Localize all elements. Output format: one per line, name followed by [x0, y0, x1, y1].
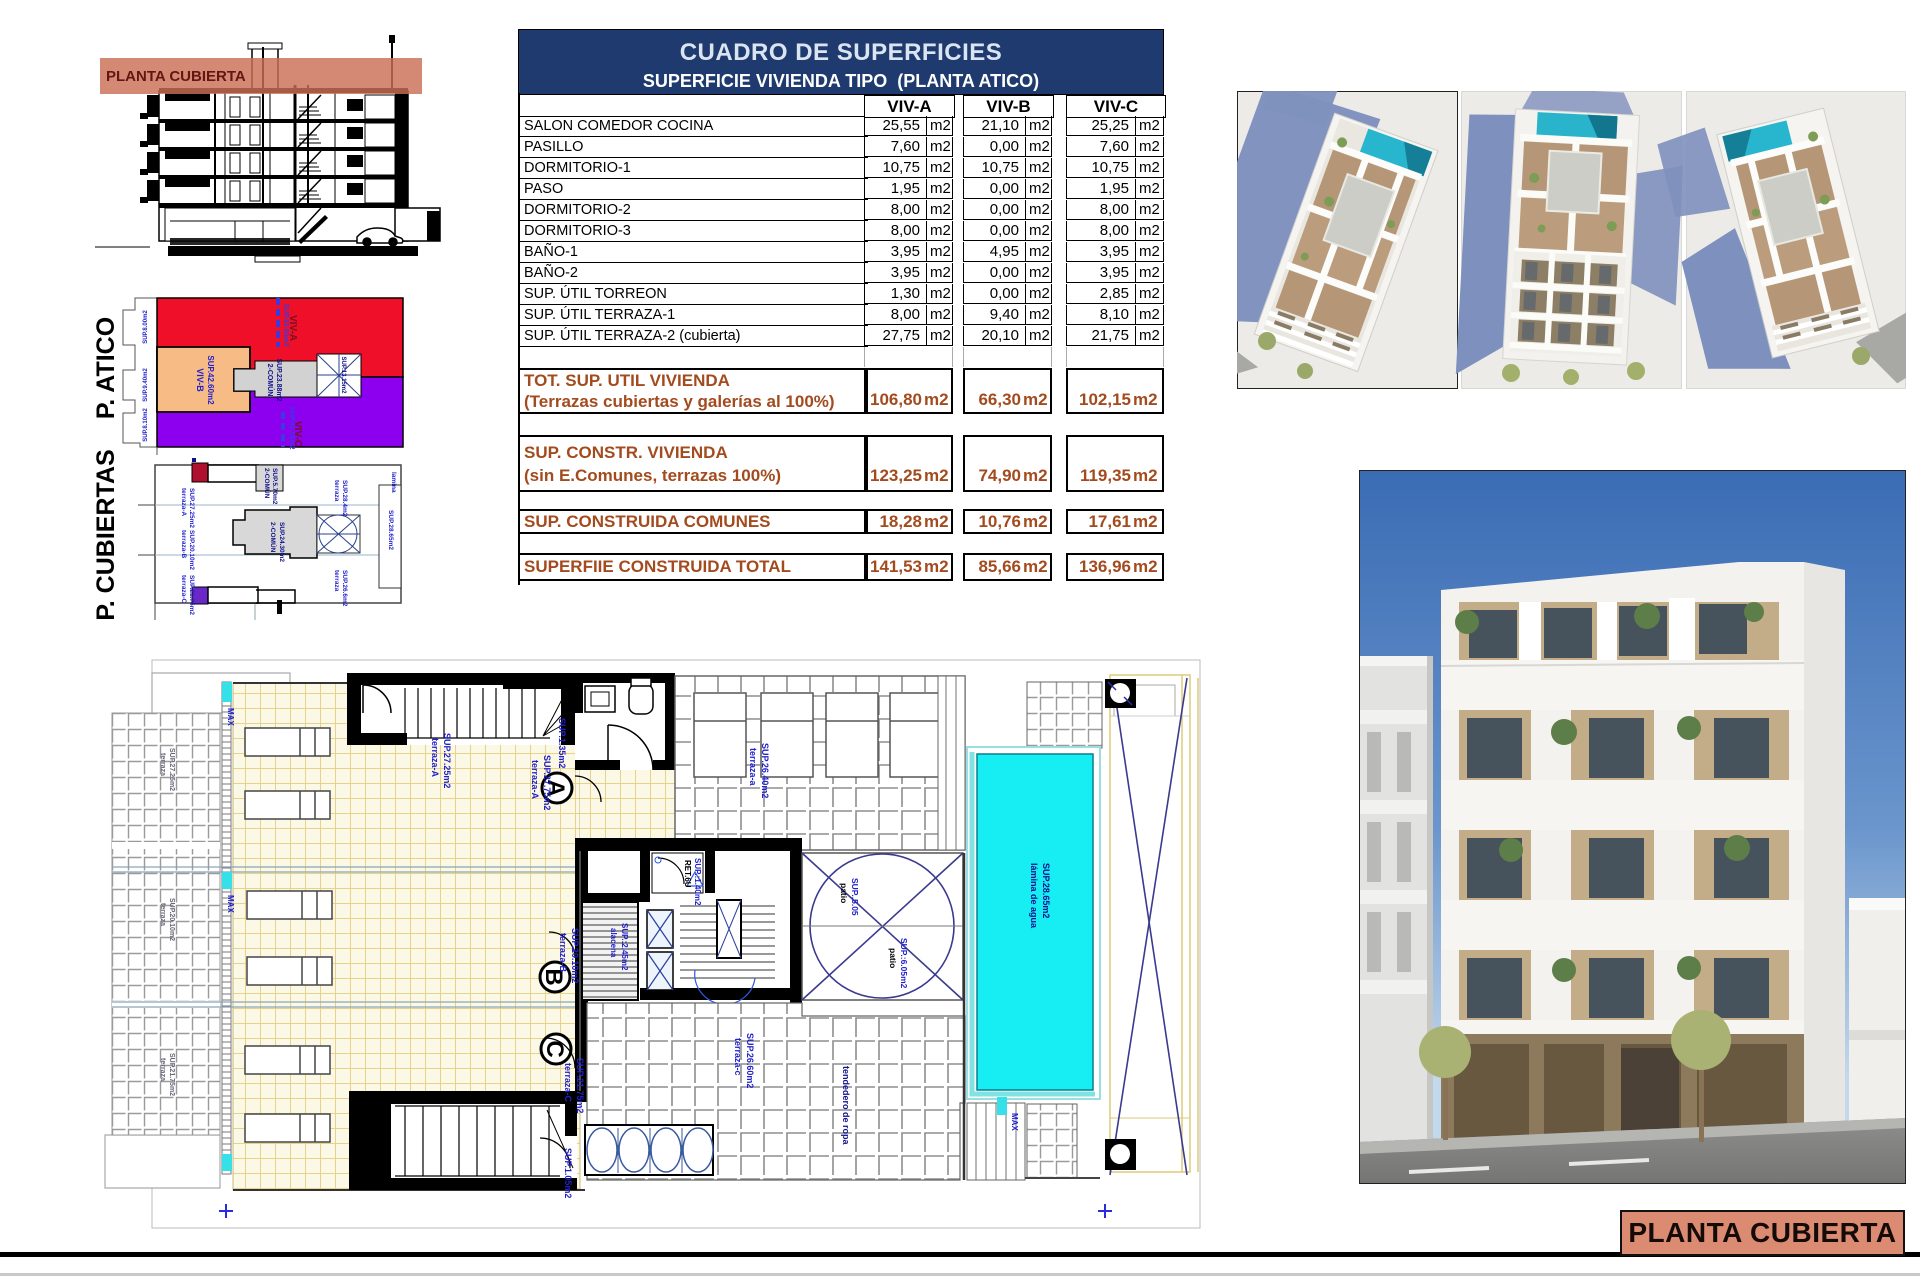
svg-text:SUP.21.75m2: SUP.21.75m2	[575, 1058, 585, 1113]
svg-text:terraza-B: terraza-B	[558, 933, 568, 973]
svg-text:SUP.:1.40m2: SUP.:1.40m2	[693, 858, 702, 906]
svg-text:SUP.26.60m2: SUP.26.60m2	[745, 1033, 755, 1088]
svg-text:SUP.8.00m2: SUP.8.00m2	[143, 310, 149, 344]
svg-text:SUP.:6.05m2: SUP.:6.05m2	[899, 938, 909, 989]
svg-text:VIV-B: VIV-B	[195, 368, 205, 392]
svg-text:terraza-a: terraza-a	[748, 748, 758, 787]
svg-text:SUP.13.15m2: SUP.13.15m2	[340, 357, 346, 395]
svg-text:terraza: terraza	[159, 903, 166, 926]
svg-text:terraza-B: terraza-B	[180, 530, 187, 558]
svg-text:patio: patio	[839, 883, 849, 903]
svg-text:terraza-A: terraza-A	[430, 738, 440, 778]
svg-text:terraza-c: terraza-c	[733, 1038, 743, 1076]
svg-text:SUP.20.10m2: SUP.20.10m2	[168, 898, 175, 941]
svg-text:P. CUBIERTAS: P. CUBIERTAS	[95, 450, 120, 621]
svg-text:MAX: MAX	[1010, 1113, 1019, 1131]
svg-text:terraza-C: terraza-C	[563, 1063, 573, 1103]
svg-text:SUP.9.40m2: SUP.9.40m2	[143, 368, 149, 402]
svg-text:2-COMÚN: 2-COMÚN	[266, 364, 275, 397]
svg-text:SUP.:2.45m2: SUP.:2.45m2	[620, 923, 629, 971]
svg-text:SUP.23.88m2: SUP.23.88m2	[275, 358, 282, 401]
svg-text:SUP.27.75m2: SUP.27.75m2	[542, 755, 552, 810]
svg-text:SUP.27.25m2: SUP.27.25m2	[168, 748, 175, 791]
svg-text:SUP.20.10m2: SUP.20.10m2	[570, 928, 580, 983]
svg-text:SUP.8.10m2: SUP.8.10m2	[143, 408, 149, 442]
svg-text:terraza: terraza	[159, 753, 166, 776]
svg-text:terraza: terraza	[333, 480, 340, 502]
svg-text:SUP.26.40m2: SUP.26.40m2	[760, 743, 770, 798]
svg-text:alacena: alacena	[609, 928, 618, 958]
svg-text:SUP.5.70m2: SUP.5.70m2	[271, 468, 278, 505]
svg-text:terraza-C: terraza-C	[180, 575, 187, 603]
svg-text:SUP.21.75m2: SUP.21.75m2	[188, 575, 195, 615]
svg-text:SUP.28.65m2: SUP.28.65m2	[387, 510, 394, 550]
svg-text:P. ATICO: P. ATICO	[95, 317, 120, 419]
svg-text:SUP.28.65m2: SUP.28.65m2	[1041, 863, 1051, 918]
svg-text:SUP.21.75m2: SUP.21.75m2	[168, 1053, 175, 1096]
svg-text:terraza: terraza	[333, 570, 340, 592]
svg-text:lámina de agua: lámina de agua	[1029, 863, 1039, 929]
svg-text:tendedero de ropa: tendedero de ropa	[841, 1066, 851, 1146]
svg-text:SUP.42.60m2: SUP.42.60m2	[282, 303, 289, 346]
svg-text:SUP.42.60m2: SUP.42.60m2	[206, 355, 215, 405]
svg-text:RET.6U: RET.6U	[683, 860, 692, 888]
svg-text:MAX: MAX	[226, 708, 235, 726]
svg-text:lamina: lamina	[390, 472, 397, 493]
svg-text:terraza-A: terraza-A	[180, 488, 187, 516]
svg-text:2-COMÚN: 2-COMÚN	[269, 522, 278, 553]
svg-text:SUP.1.35m2: SUP.1.35m2	[557, 718, 567, 768]
svg-text:MAX: MAX	[226, 895, 235, 913]
svg-text:patio: patio	[888, 948, 898, 968]
svg-text:SUP.27.25m2: SUP.27.25m2	[188, 488, 195, 528]
svg-text:SUP.41.05m2: SUP.41.05m2	[288, 406, 295, 449]
svg-text:SUP.1.05m2: SUP.1.05m2	[563, 1148, 573, 1198]
svg-text:SUP..5.05: SUP..5.05	[850, 878, 860, 916]
svg-text:SUP.28.4m2: SUP.28.4m2	[341, 480, 348, 517]
svg-text:PLANTA CUBIERTA: PLANTA CUBIERTA	[106, 68, 246, 85]
svg-text:SUP.27.25m2: SUP.27.25m2	[442, 733, 452, 788]
svg-text:terraza: terraza	[159, 1058, 166, 1081]
svg-text:terraza-A: terraza-A	[530, 760, 540, 800]
svg-text:SUP.20.10m2: SUP.20.10m2	[188, 530, 195, 570]
svg-text:SUP.26.6m2: SUP.26.6m2	[341, 570, 348, 607]
svg-text:2-COMÚN: 2-COMÚN	[263, 468, 272, 499]
svg-text:SUP.24.30m2: SUP.24.30m2	[278, 522, 285, 562]
svg-text:C: C	[541, 1040, 568, 1057]
